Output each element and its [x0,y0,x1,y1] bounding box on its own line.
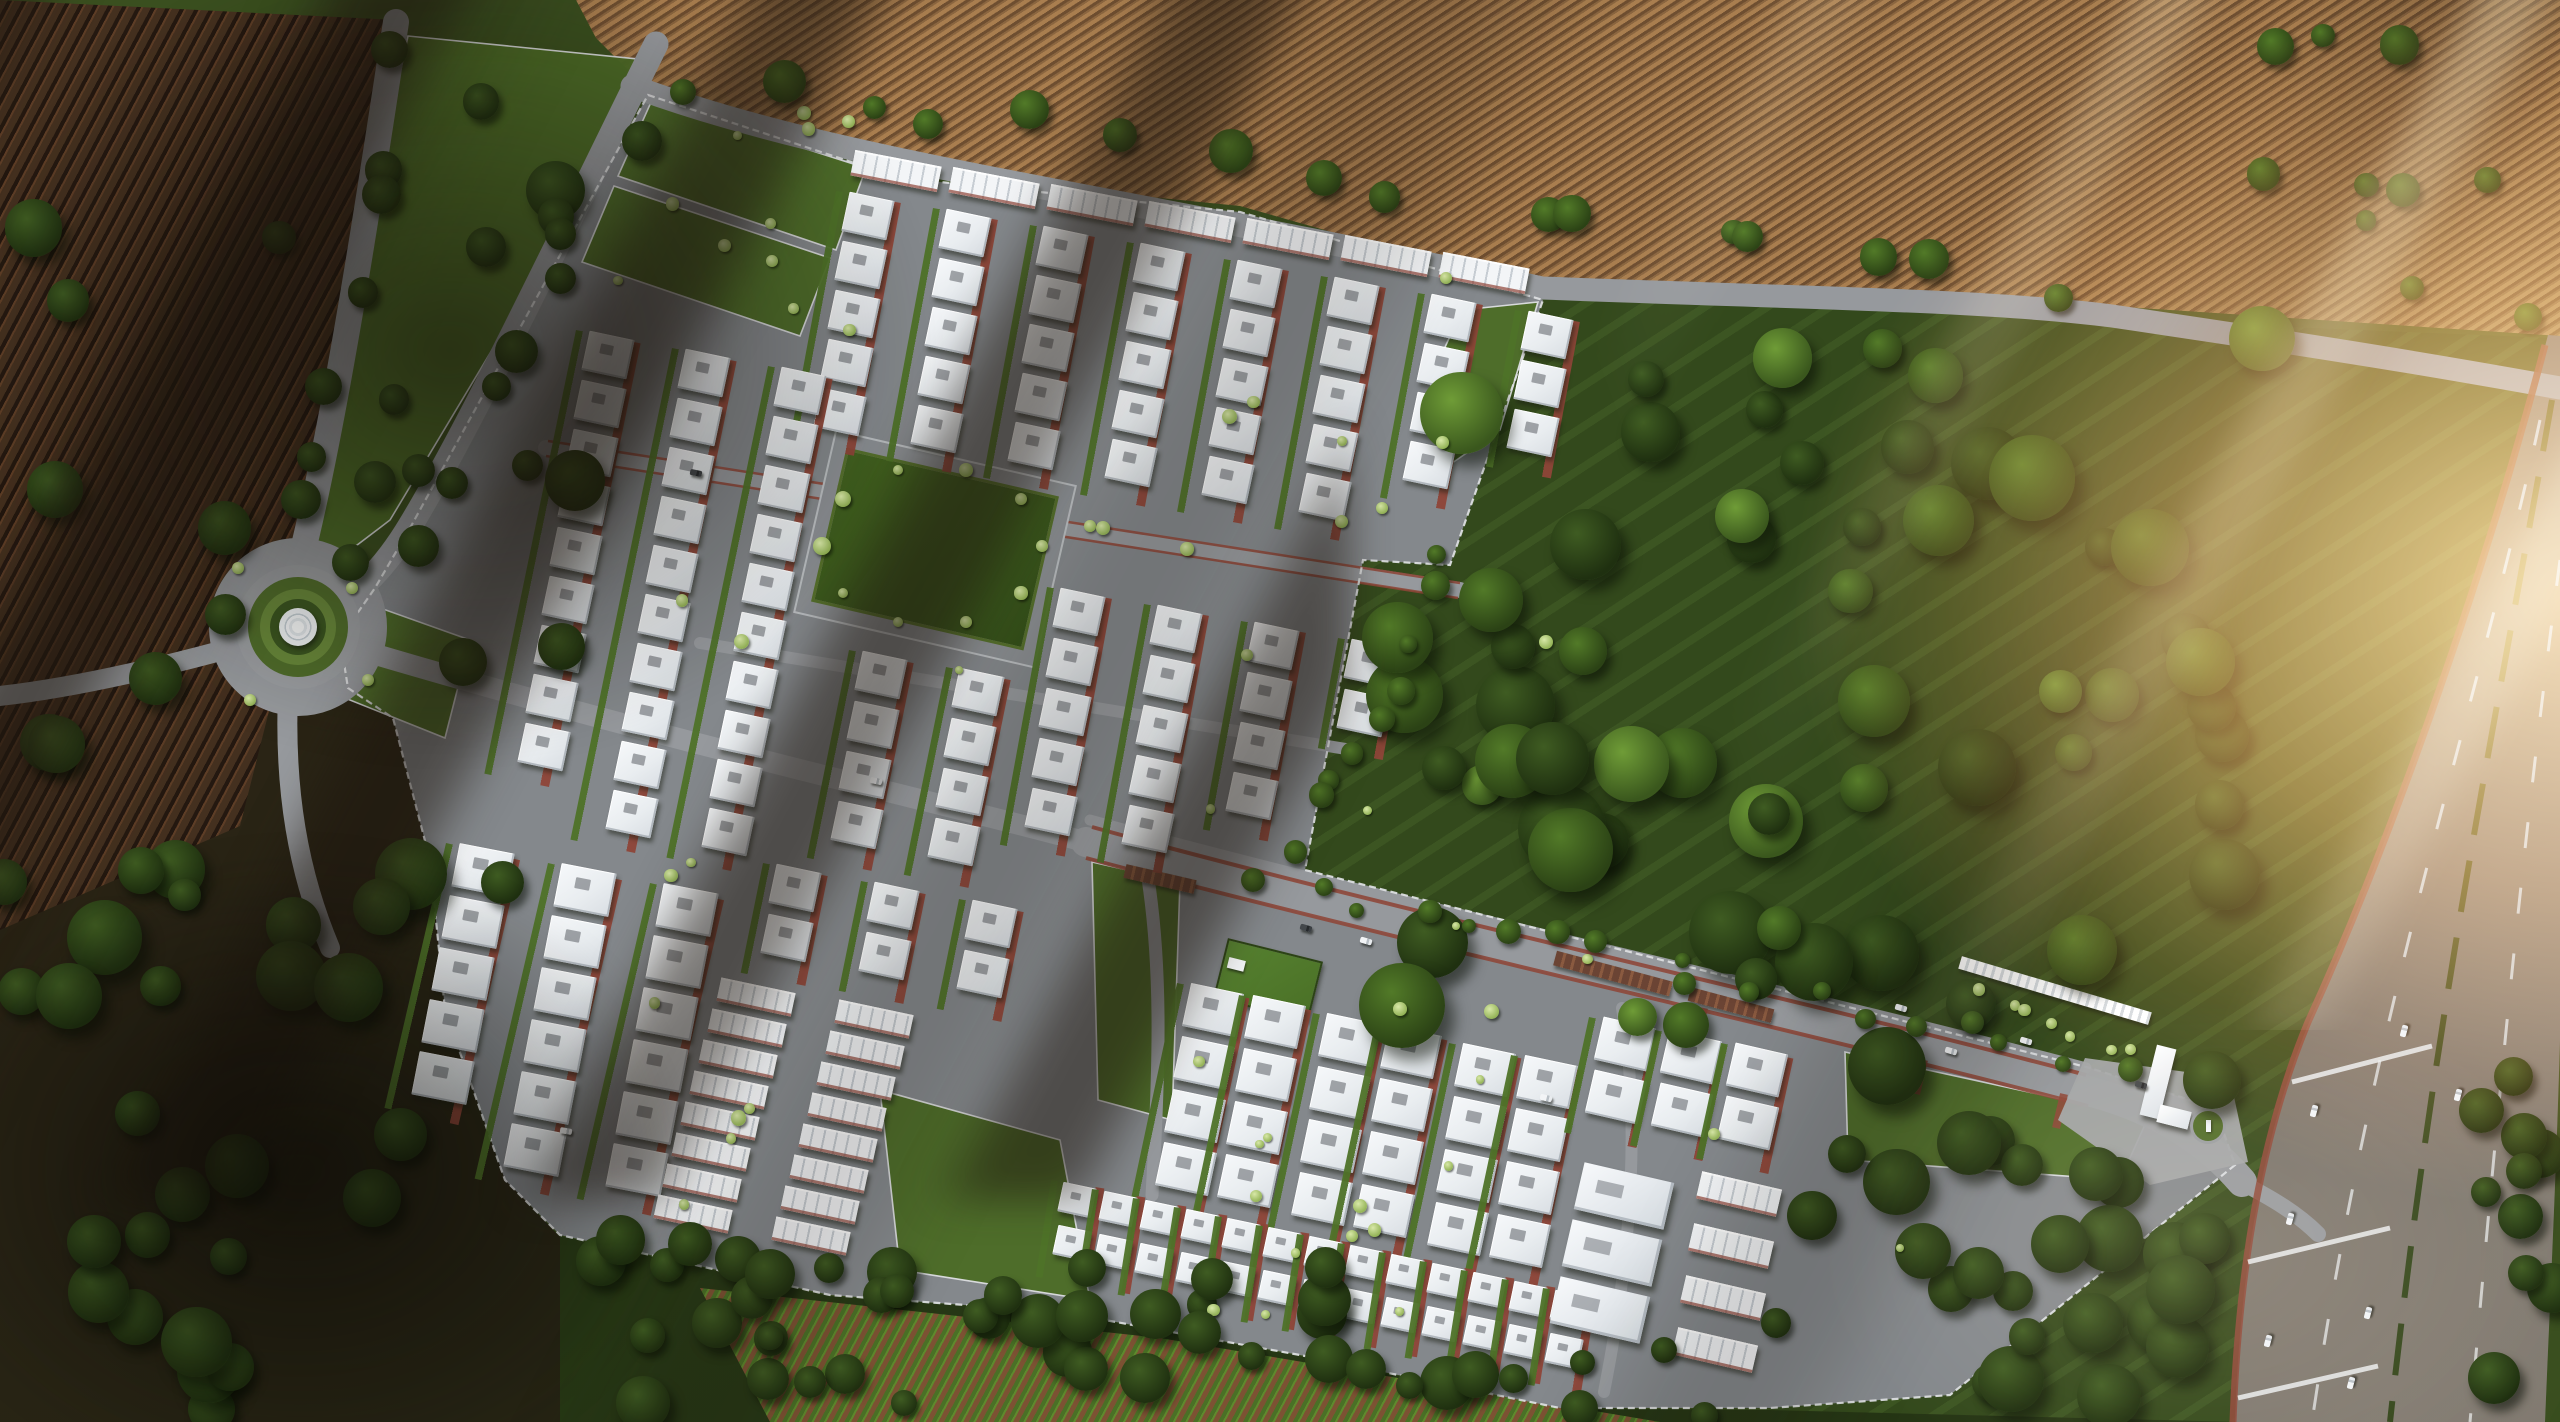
vignette [0,0,2560,1422]
atmosphere-layer [0,0,2560,1422]
aerial-render-stage [0,0,2560,1422]
